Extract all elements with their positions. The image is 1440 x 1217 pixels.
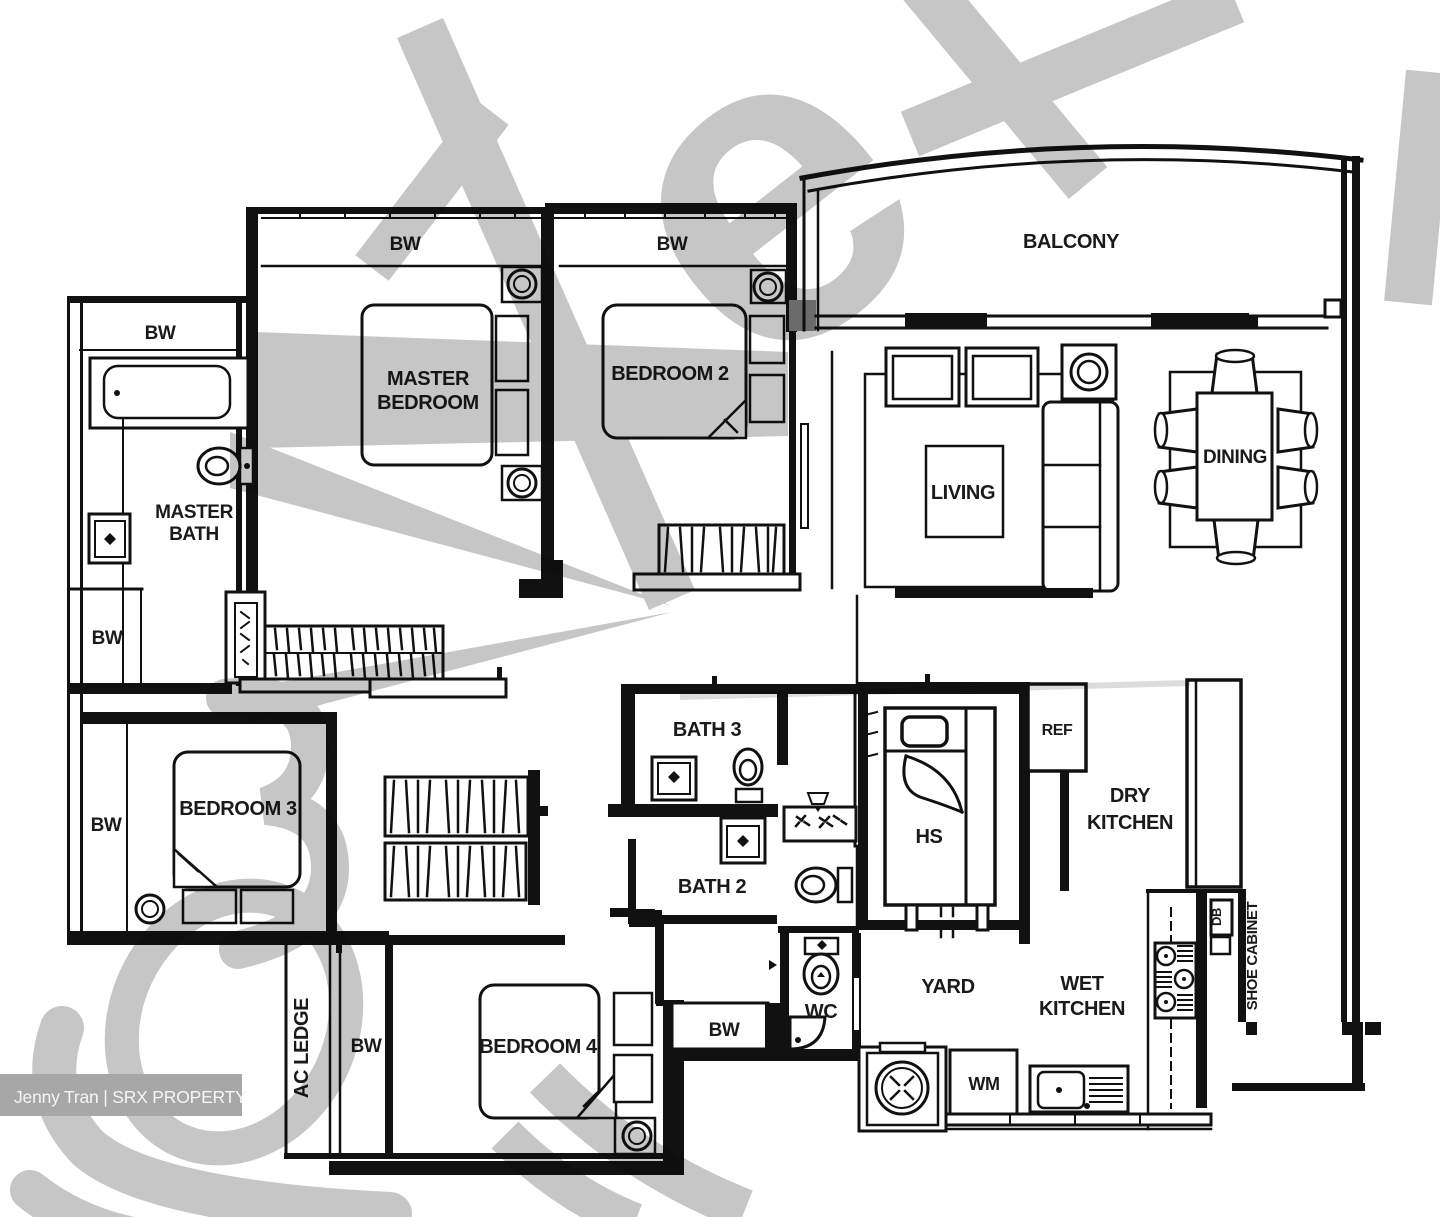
svg-text:LIVING: LIVING — [931, 482, 995, 504]
svg-text:HS: HS — [916, 826, 943, 848]
svg-text:YARD: YARD — [921, 976, 974, 998]
svg-text:WC: WC — [805, 1001, 838, 1023]
svg-text:WM: WM — [968, 1074, 999, 1094]
svg-text:KITCHEN: KITCHEN — [1039, 998, 1125, 1020]
svg-text:DINING: DINING — [1203, 447, 1267, 468]
svg-text:BATH 3: BATH 3 — [673, 719, 742, 741]
svg-text:BW: BW — [709, 1020, 740, 1041]
svg-text:REF: REF — [1042, 722, 1073, 739]
svg-text:BW: BW — [145, 323, 176, 344]
svg-text:Jenny Tran | SRX PROPERTY: Jenny Tran | SRX PROPERTY — [14, 1087, 247, 1107]
svg-text:DB: DB — [1209, 908, 1224, 926]
svg-text:SHOE CABINET: SHOE CABINET — [1244, 901, 1261, 1010]
svg-text:BW: BW — [91, 815, 122, 836]
svg-text:BW: BW — [92, 628, 123, 649]
svg-text:WET: WET — [1060, 973, 1103, 995]
svg-text:MASTER: MASTER — [155, 502, 234, 523]
svg-text:BALCONY: BALCONY — [1023, 231, 1120, 253]
svg-text:KITCHEN: KITCHEN — [1087, 812, 1173, 834]
svg-text:DRY: DRY — [1110, 785, 1151, 807]
svg-text:BATH: BATH — [169, 524, 219, 545]
svg-text:BATH 2: BATH 2 — [678, 876, 747, 898]
svg-text:BEDROOM 4: BEDROOM 4 — [479, 1036, 598, 1058]
